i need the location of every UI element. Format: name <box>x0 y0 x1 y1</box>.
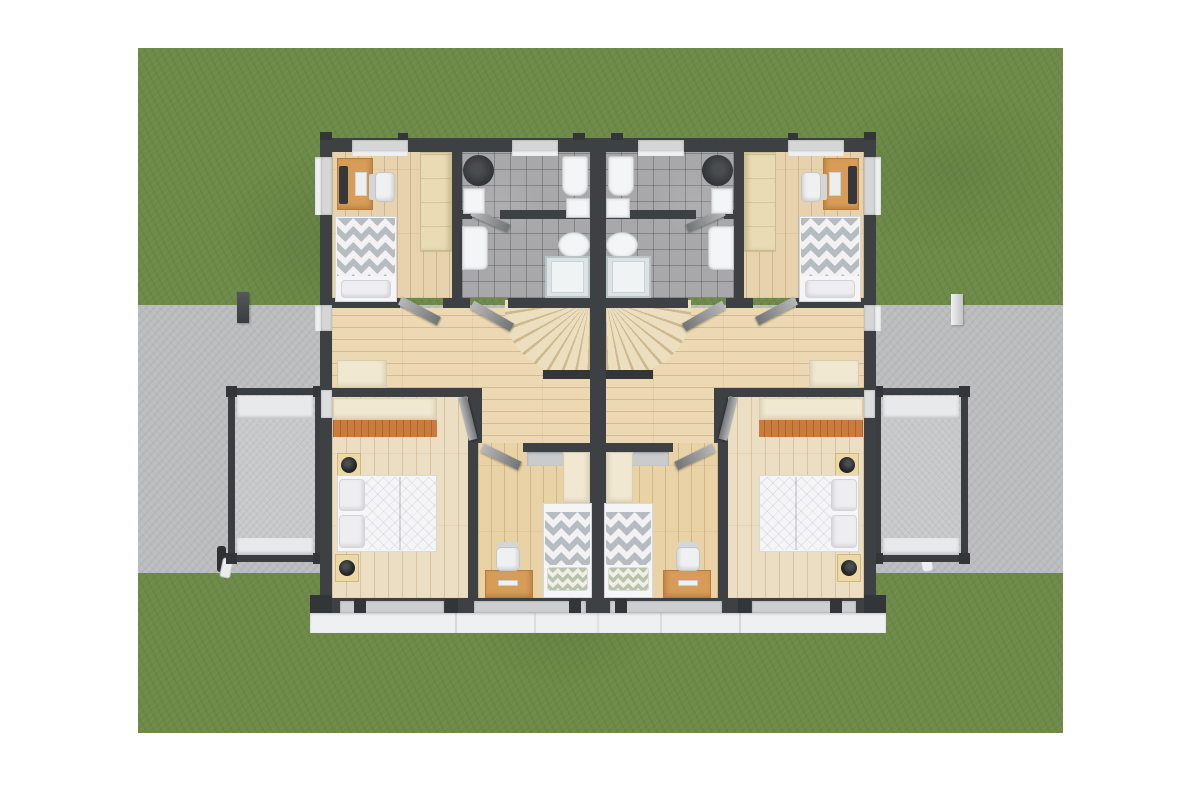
radiator-panel <box>527 452 567 466</box>
double-bed-pillow <box>339 479 365 511</box>
nightstand-lamp <box>339 560 355 576</box>
radiator-panel <box>629 452 669 466</box>
sill-seam <box>455 613 457 633</box>
window-mullion <box>615 599 627 613</box>
wall-top-rooms-south-3 <box>606 298 688 308</box>
dresser-top <box>759 398 863 420</box>
window-west-bedroom <box>321 157 332 215</box>
dresser-drawers <box>759 420 863 437</box>
wall-top-rooms-south-3 <box>508 298 590 308</box>
wall-pilaster <box>573 133 585 140</box>
duvet-seam <box>399 477 401 550</box>
bath-cabinet <box>463 188 485 214</box>
wardrobe-top-bedroom <box>420 152 452 252</box>
office-chair <box>375 172 395 202</box>
nightstand-lamp <box>841 560 857 576</box>
sill-seam <box>534 613 536 633</box>
window-west-hallway <box>321 305 332 331</box>
nightstand-lamp <box>341 457 357 473</box>
desk-monitor <box>339 166 348 204</box>
office-chair <box>801 172 821 202</box>
single-bed-duvet <box>606 512 651 565</box>
wardrobe-middle-bedroom <box>606 452 633 503</box>
balcony-post <box>959 553 970 564</box>
window-mullion <box>569 599 581 613</box>
window-north-bathroom-sill <box>512 150 558 156</box>
wall-top-rooms-south-2 <box>443 298 470 308</box>
duvet-seam <box>795 477 797 550</box>
wall-bed-bath-divider <box>452 152 462 308</box>
balcony-ledge-bottom <box>237 538 313 555</box>
single-bed-pillow-sage <box>608 567 649 591</box>
floor-plan-scene <box>0 0 1200 800</box>
hallway-sideboard <box>809 360 859 388</box>
desk-keyboard <box>498 580 518 586</box>
window-west-hallway-sill <box>875 305 881 331</box>
double-bed-pillow <box>339 515 365 548</box>
sill-seam <box>739 613 741 633</box>
wall-pilaster <box>320 132 332 140</box>
washbasin-west <box>708 226 734 270</box>
desk-monitor <box>848 166 857 204</box>
sill-band-south <box>310 613 598 633</box>
window-north-bathroom-sill <box>638 150 684 156</box>
window-north-bedroom-sill <box>352 150 408 156</box>
unit-left <box>228 130 598 635</box>
washbasin-north <box>566 198 590 218</box>
sill-seam <box>660 613 662 633</box>
window-west-bedroom <box>864 157 875 215</box>
single-bed-pillow-sage <box>547 567 588 591</box>
shower-tray <box>612 261 645 293</box>
office-chair <box>496 547 520 571</box>
wall-middle-bedroom-north <box>606 443 673 452</box>
single-bed-pillow <box>341 280 391 298</box>
double-bed-pillow <box>831 515 857 548</box>
desk-paper <box>829 172 841 196</box>
shower-tray <box>551 261 584 293</box>
stair-rail <box>602 370 653 379</box>
balcony-door <box>864 390 875 418</box>
single-bed-duvet <box>545 512 590 565</box>
toilet-oval <box>606 232 638 258</box>
hallway-sideboard <box>337 360 387 388</box>
double-bed-pillow <box>831 479 857 511</box>
window-west-hallway <box>864 305 875 331</box>
wall-master-middle-divider <box>468 443 478 600</box>
sill-band-south <box>598 613 886 633</box>
single-bed-duvet <box>337 218 395 276</box>
desk-keyboard <box>678 580 698 586</box>
wall-pilaster <box>864 132 876 140</box>
toilet-north <box>608 156 634 196</box>
wall-hallway-south <box>332 388 482 397</box>
window-mullion <box>738 599 751 613</box>
wall-hallway-south <box>714 388 864 397</box>
toilet-oval <box>558 232 590 258</box>
wall-pilaster <box>611 133 623 140</box>
balcony-post <box>226 553 237 564</box>
wall-pilaster <box>398 133 408 140</box>
balcony-ledge-top <box>883 396 959 419</box>
wall-top-rooms-south-2 <box>726 298 753 308</box>
wall-pilaster <box>788 133 798 140</box>
dresser-drawers <box>333 420 437 437</box>
washbasin-north <box>606 198 630 218</box>
dresser-top <box>333 398 437 420</box>
wall-corner-southwest <box>864 595 886 613</box>
balcony-ledge-bottom <box>883 538 959 555</box>
balcony-door <box>321 390 332 418</box>
wardrobe-top-bedroom <box>744 152 776 252</box>
window-mullion <box>445 599 458 613</box>
balcony-ledge-top <box>237 396 313 419</box>
office-chair <box>676 547 700 571</box>
window-mullion <box>830 599 842 613</box>
single-bed-pillow <box>805 280 855 298</box>
desk-paper <box>355 172 367 196</box>
nightstand-lamp <box>839 457 855 473</box>
stair-rail <box>543 370 594 379</box>
office-chair-back <box>821 174 827 200</box>
window-west-bedroom-sill <box>875 157 881 215</box>
window-north-bedroom-sill <box>788 150 844 156</box>
wall-master-middle-divider <box>718 443 728 600</box>
wall-corner-southwest <box>310 595 332 613</box>
unit-right <box>598 130 968 635</box>
balcony-post <box>959 386 970 397</box>
bath-cabinet <box>711 188 733 214</box>
washbasin-west <box>462 226 488 270</box>
washing-machine <box>702 155 733 186</box>
single-bed-duvet <box>801 218 859 276</box>
balcony-post <box>226 386 237 397</box>
washing-machine <box>463 155 494 186</box>
window-mullion <box>354 599 366 613</box>
wardrobe-middle-bedroom <box>563 452 590 503</box>
toilet-north <box>562 156 588 196</box>
wall-middle-bedroom-north <box>523 443 590 452</box>
wall-bed-bath-divider <box>734 152 744 308</box>
